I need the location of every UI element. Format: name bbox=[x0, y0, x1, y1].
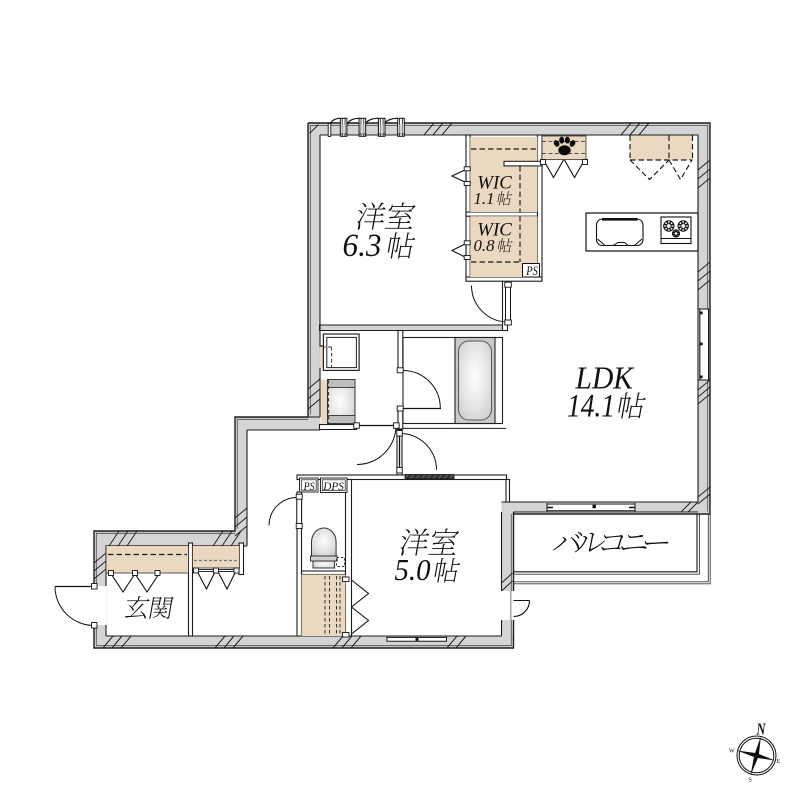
svg-text:5.0: 5.0 bbox=[395, 552, 431, 587]
svg-text:0.8: 0.8 bbox=[474, 236, 496, 255]
svg-text:6.3: 6.3 bbox=[343, 228, 382, 264]
svg-text:1.1: 1.1 bbox=[474, 189, 495, 208]
svg-text:14.1: 14.1 bbox=[567, 389, 615, 425]
svg-text:PS: PS bbox=[526, 263, 539, 278]
svg-text:W: W bbox=[729, 749, 735, 755]
svg-text:N: N bbox=[756, 720, 766, 739]
svg-text:DPS: DPS bbox=[322, 479, 343, 493]
svg-text:PS: PS bbox=[303, 479, 315, 493]
svg-text:S: S bbox=[749, 778, 752, 784]
svg-text:E: E bbox=[777, 759, 781, 765]
